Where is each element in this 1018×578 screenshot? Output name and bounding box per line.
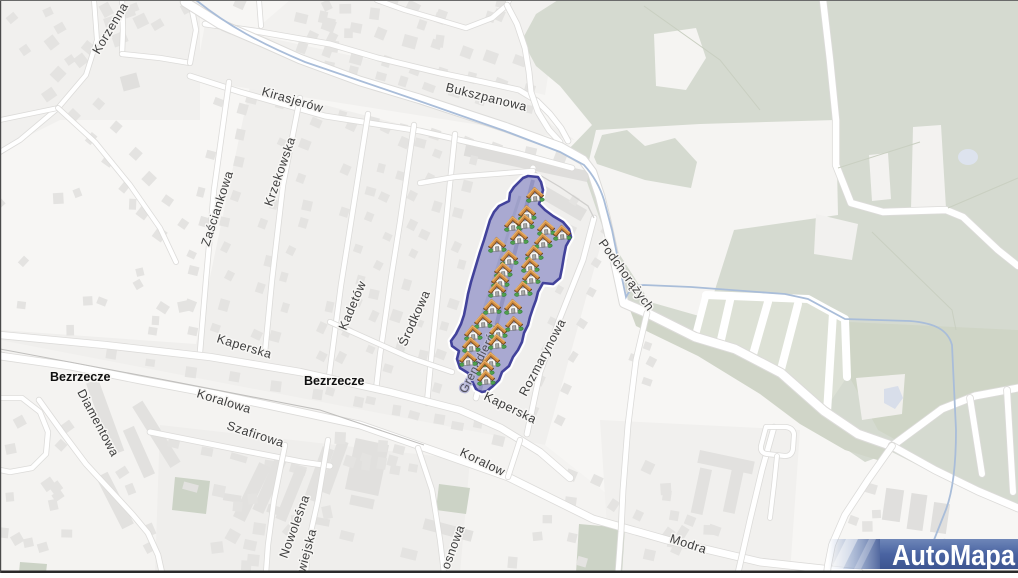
svg-text:Bezrzecze: Bezrzecze (304, 374, 364, 388)
svg-text:Bezrzecze: Bezrzecze (50, 370, 110, 384)
svg-text:AutoMapa: AutoMapa (892, 540, 1016, 572)
